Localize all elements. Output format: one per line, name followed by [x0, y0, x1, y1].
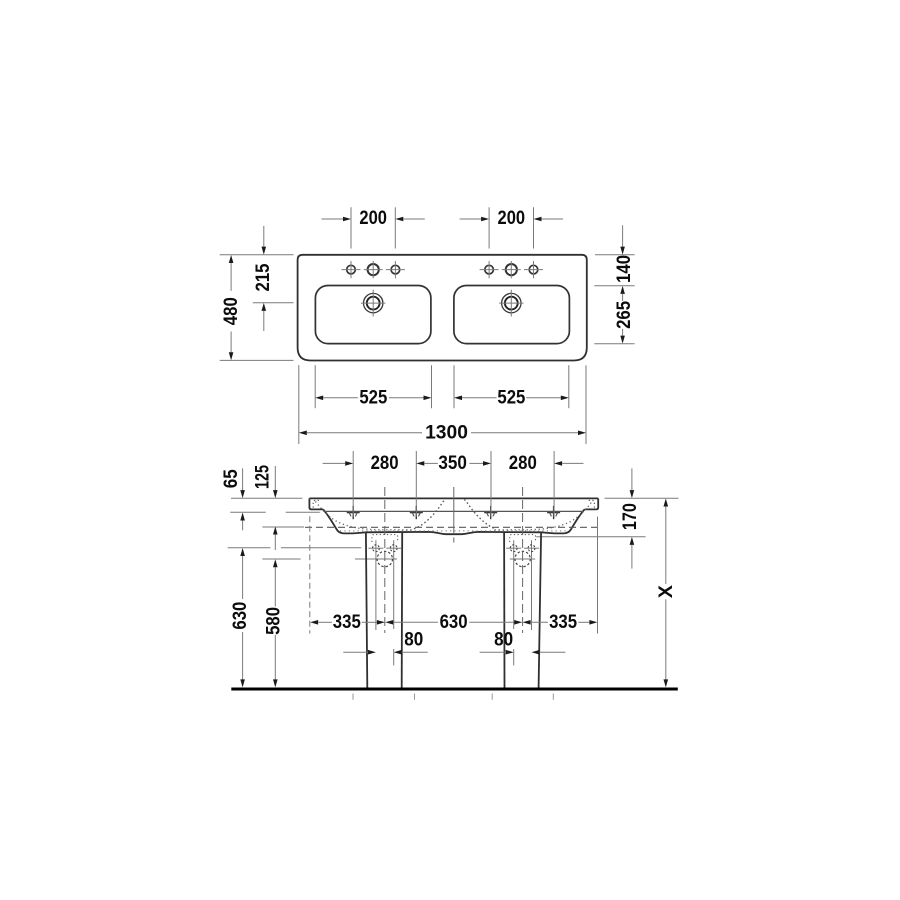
svg-text:200: 200 — [498, 207, 526, 229]
svg-text:215: 215 — [252, 263, 274, 291]
svg-text:65: 65 — [220, 469, 242, 488]
svg-text:80: 80 — [404, 628, 423, 650]
svg-text:335: 335 — [549, 611, 577, 633]
svg-text:280: 280 — [509, 452, 537, 474]
svg-text:125: 125 — [251, 465, 273, 489]
svg-text:280: 280 — [371, 452, 399, 474]
svg-text:630: 630 — [440, 611, 468, 633]
svg-text:170: 170 — [619, 503, 641, 530]
svg-text:480: 480 — [220, 297, 242, 325]
svg-text:580: 580 — [262, 607, 284, 635]
svg-text:140: 140 — [613, 255, 635, 283]
svg-text:1300: 1300 — [425, 421, 468, 443]
svg-text:525: 525 — [359, 386, 387, 408]
svg-text:335: 335 — [333, 611, 361, 633]
svg-text:525: 525 — [497, 386, 525, 408]
svg-text:80: 80 — [494, 628, 513, 650]
svg-text:X: X — [655, 585, 677, 598]
svg-text:265: 265 — [613, 301, 635, 329]
svg-text:200: 200 — [359, 207, 387, 229]
svg-text:350: 350 — [438, 452, 467, 474]
svg-text:630: 630 — [229, 601, 251, 629]
